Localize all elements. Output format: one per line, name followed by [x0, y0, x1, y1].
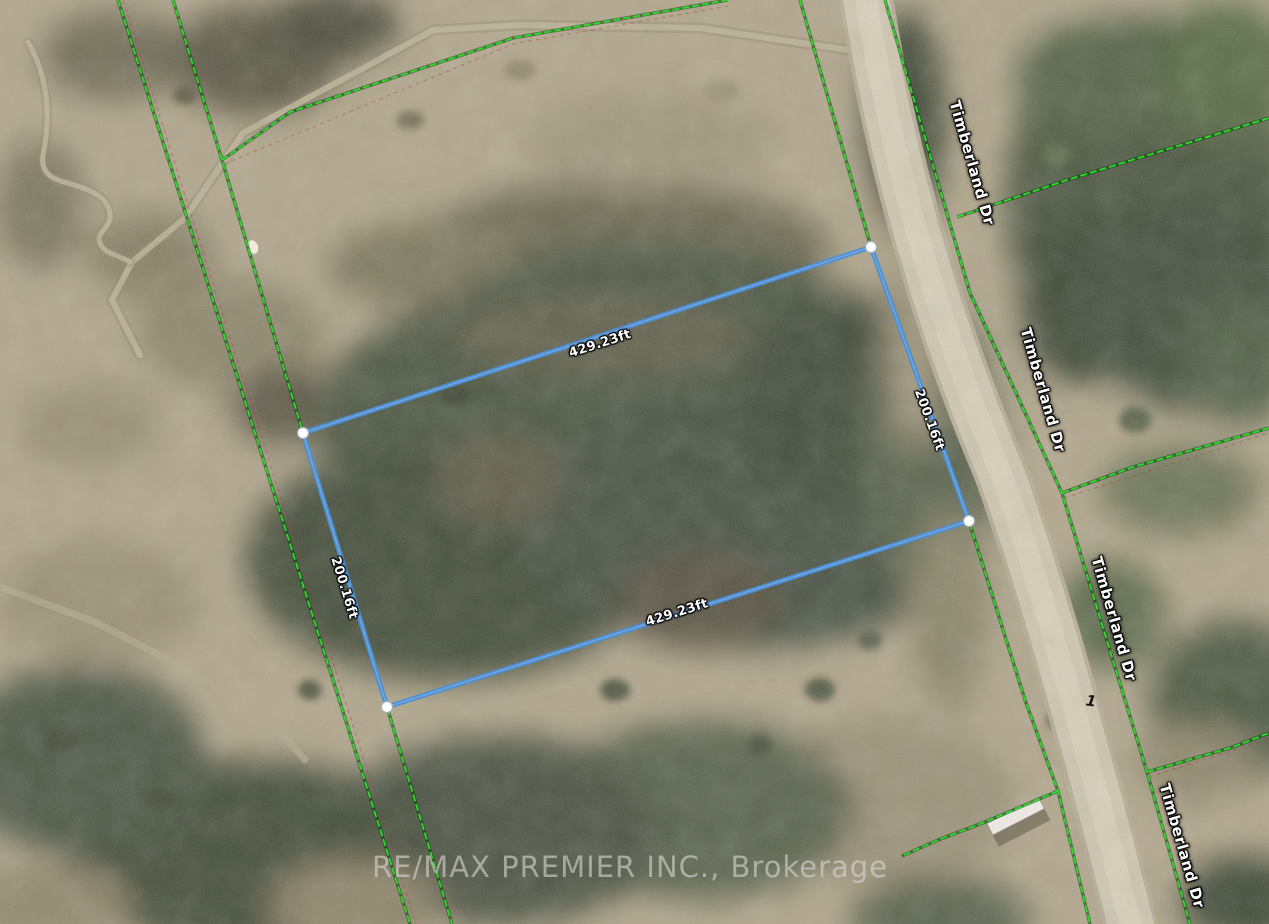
texture-fine [0, 0, 1269, 924]
lot-corner-marker [382, 702, 393, 713]
lot-corner-marker [964, 516, 975, 527]
lot-corner-marker [298, 428, 309, 439]
satellite-map: 429.23ft 200.16ft 429.23ft 200.16ft Timb… [0, 0, 1269, 924]
lot-corner-marker [866, 242, 877, 253]
satellite-imagery [0, 0, 1269, 924]
